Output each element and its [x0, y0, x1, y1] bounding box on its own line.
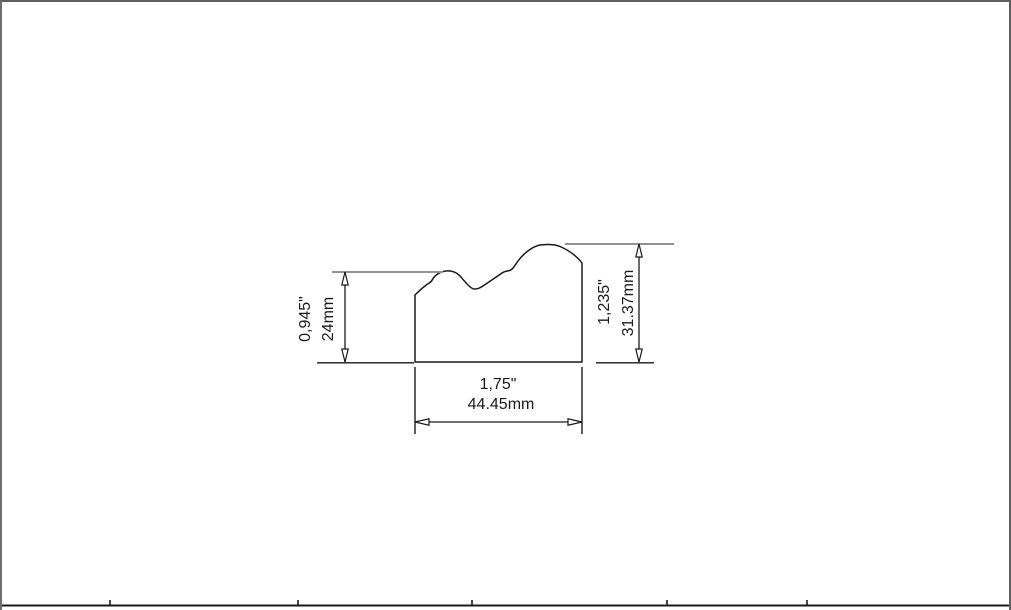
right-dim-arrow-down-icon	[636, 349, 642, 362]
right-dim-label-inches: 1,235"	[596, 279, 614, 325]
left-dim-arrow-down-icon	[342, 349, 348, 362]
bottom-dim-arrow-right-icon	[568, 419, 582, 425]
bottom-dim-label-mm: 44.45mm	[468, 396, 535, 414]
drawing-canvas: 0,945" 24mm 1,235" 31.37mm 1,75" 44.45mm	[0, 0, 1011, 610]
left-dim-arrow-up-icon	[342, 272, 348, 285]
bottom-dim-label-inches: 1,75"	[480, 376, 517, 394]
left-dim-label-mm: 24mm	[320, 297, 338, 341]
right-dim-label-mm: 31.37mm	[620, 270, 638, 337]
right-dim-arrow-up-icon	[636, 244, 642, 257]
moulding-profile-outline	[415, 245, 582, 362]
bottom-dim-arrow-left-icon	[415, 419, 429, 425]
profile-drawing-svg	[2, 2, 1011, 610]
left-dim-label-inches: 0,945"	[297, 296, 315, 342]
